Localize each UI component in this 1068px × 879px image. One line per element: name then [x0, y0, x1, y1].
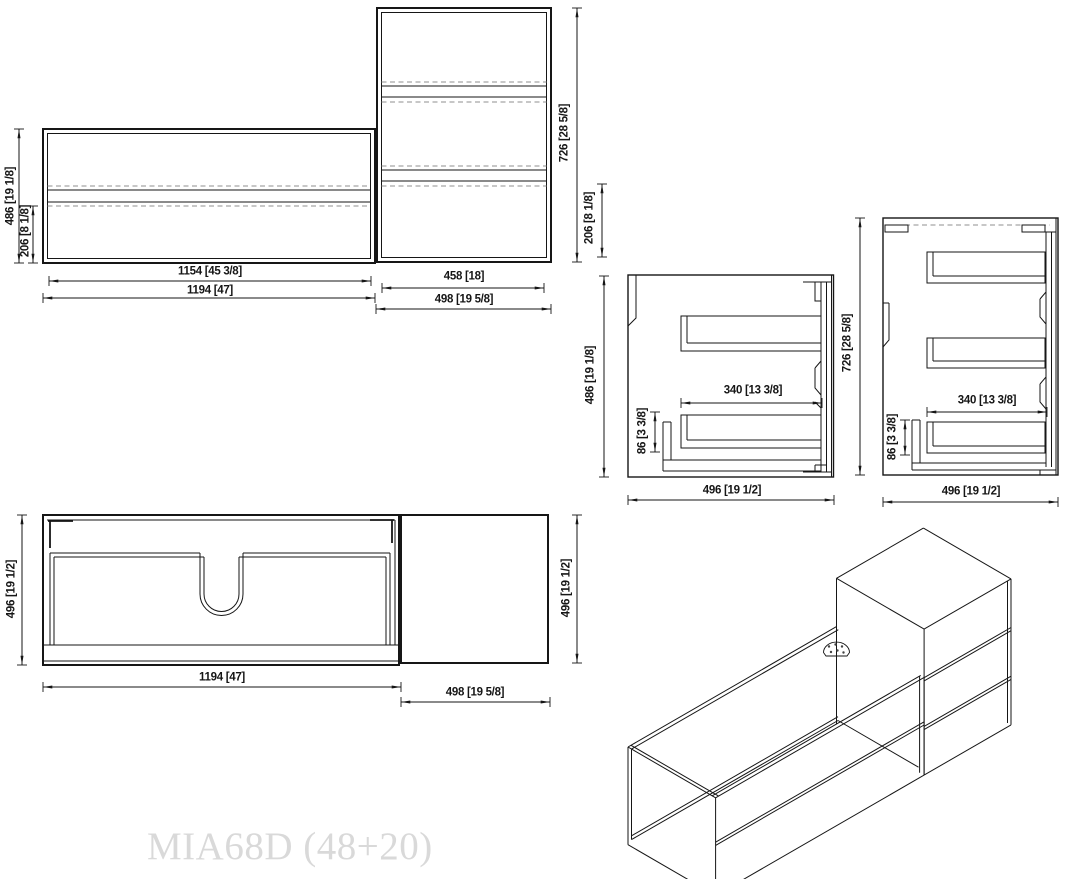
dim-label-front-tall-height: 726 [28 5/8] [559, 104, 571, 162]
dim-label-front-tall-width: 498 [19 5/8] [435, 294, 493, 306]
dim-label-side-wide-offset: 86 [3 3/8] [637, 408, 649, 454]
model-watermark: MIA68D (48+20) [147, 824, 433, 869]
dim-label-top-tall-depth: 496 [19 1/2] [561, 559, 573, 617]
dim-label-top-tall-width: 498 [19 5/8] [446, 687, 504, 699]
drawing-canvas: 486 [19 1/8] 206 [8 1/8] 1154 [45 3/8] 1… [0, 0, 1068, 879]
dim-label-front-wide-inner-width: 1154 [45 3/8] [178, 266, 242, 278]
dim-label-side-tall-height: 726 [28 5/8] [842, 314, 854, 372]
dim-label-top-wide-width: 1194 [47] [199, 672, 245, 684]
isometric-view-linework [628, 528, 1011, 879]
side-view-tall-linework [883, 218, 1058, 475]
top-view-linework [43, 515, 548, 665]
dimension-lines [19, 8, 1058, 702]
dim-label-front-wide-width: 1194 [47] [187, 285, 233, 297]
side-view-wide-linework [628, 275, 834, 477]
dim-label-side-wide-height: 486 [19 1/8] [585, 346, 597, 404]
front-view-wide-linework [43, 129, 375, 263]
dim-label-top-wide-depth: 496 [19 1/2] [6, 560, 18, 618]
dim-label-front-tall-drawer: 206 [8 1/8] [584, 192, 596, 244]
dim-label-side-wide-depth: 496 [19 1/2] [703, 485, 761, 497]
dim-label-front-wide-height: 486 [19 1/8] [5, 167, 17, 225]
dim-label-side-tall-depth: 496 [19 1/2] [942, 486, 1000, 498]
dim-label-side-tall-slide: 340 [13 3/8] [958, 395, 1016, 407]
dim-label-side-tall-offset: 86 [3 3/8] [887, 414, 899, 460]
technical-drawing-linework [0, 0, 1068, 879]
dim-label-side-wide-slide: 340 [13 3/8] [724, 385, 782, 397]
dim-label-front-tall-inner-width: 458 [18] [444, 271, 484, 283]
dim-label-front-wide-drawer: 206 [8 1/8] [20, 205, 32, 257]
front-view-tall-linework [377, 8, 551, 262]
